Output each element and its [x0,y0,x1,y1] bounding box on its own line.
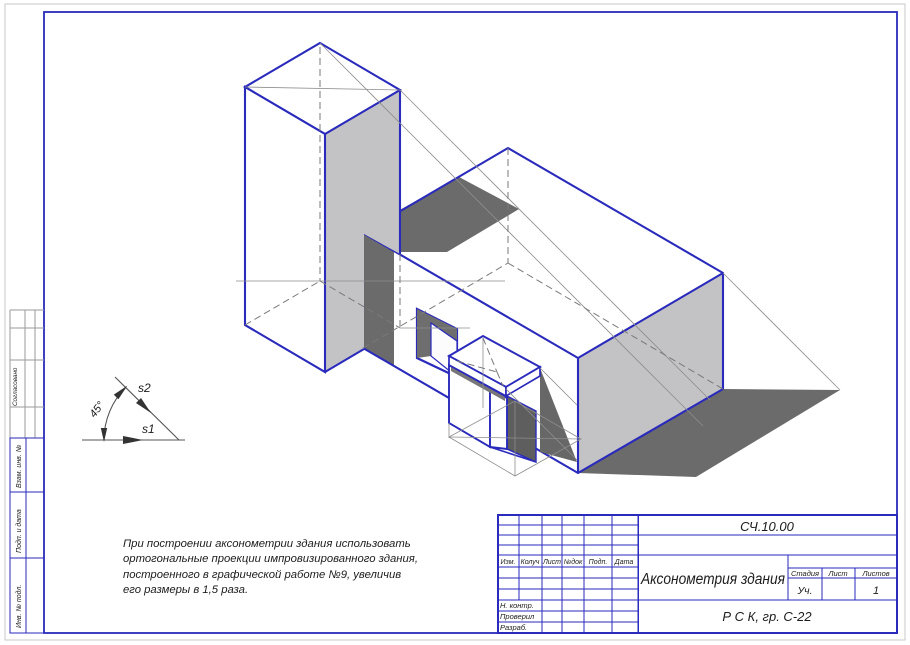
s2-label: s2 [138,381,151,395]
col-izm: Изм. [501,559,516,566]
col-ndok: №док [564,558,583,566]
note-line-1: При построении аксонометрии здания испол… [123,538,411,550]
col-data: Дата [614,559,634,566]
stage-header: Стадия [791,569,819,578]
margin-label-podp-data: Подп. и дата [15,509,23,553]
row-razrab: Разраб. [500,623,527,632]
sheets-value: 1 [873,585,879,597]
margin-label-vzam-inv: Взам. инв. № [16,444,23,488]
col-list: Лист [542,559,561,566]
doc-code: СЧ.10.00 [740,519,794,534]
row-proveril: Проверил [500,612,535,621]
note-line-2: ортогональные проекции импровизированног… [123,553,418,565]
tower-front-face [245,87,325,372]
stage-value: Уч. [796,585,812,597]
title-block-texts: СЧ.10.00 Аксонометрия здания Р С К, гр. … [500,519,890,632]
s1-arrowhead-icon [123,436,143,444]
col-koluch: Колуч [521,559,540,566]
col-podp: Подп. [589,558,608,566]
gost-drawing-canvas: s1 s2 45° При построении аксонометрии зд… [0,0,910,645]
sheets-header: Листов [861,569,889,578]
organization: Р С К, гр. С-22 [722,609,812,624]
angle-label: 45° [87,399,107,420]
left-margin-strip: Согласовано Взам. инв. № Подп. и дата Ин… [10,310,44,633]
drawing-sheet: s1 s2 45° При построении аксонометрии зд… [0,0,910,645]
row-nkontr: Н. контр. [500,601,534,610]
title-block: СЧ.10.00 Аксонометрия здания Р С К, гр. … [498,515,897,633]
note-line-4: его размеры в 1,5 раза. [123,584,248,596]
axonometric-building-drawing [236,43,840,477]
note-text: При построении аксонометрии здания испол… [123,538,418,596]
sheet-header: Лист [827,569,847,578]
light-direction-legend: s1 s2 45° [82,377,185,444]
margin-label-soglasovano: Согласовано [12,367,19,406]
drawing-title: Аксонометрия здания [640,571,785,588]
s1-label: s1 [142,422,155,436]
note-line-3: построенного в графической работе №9, ув… [123,569,401,581]
arc-arrowhead-top-icon [114,386,128,400]
margin-label-inv-podl: Инв. № подл. [15,585,23,628]
